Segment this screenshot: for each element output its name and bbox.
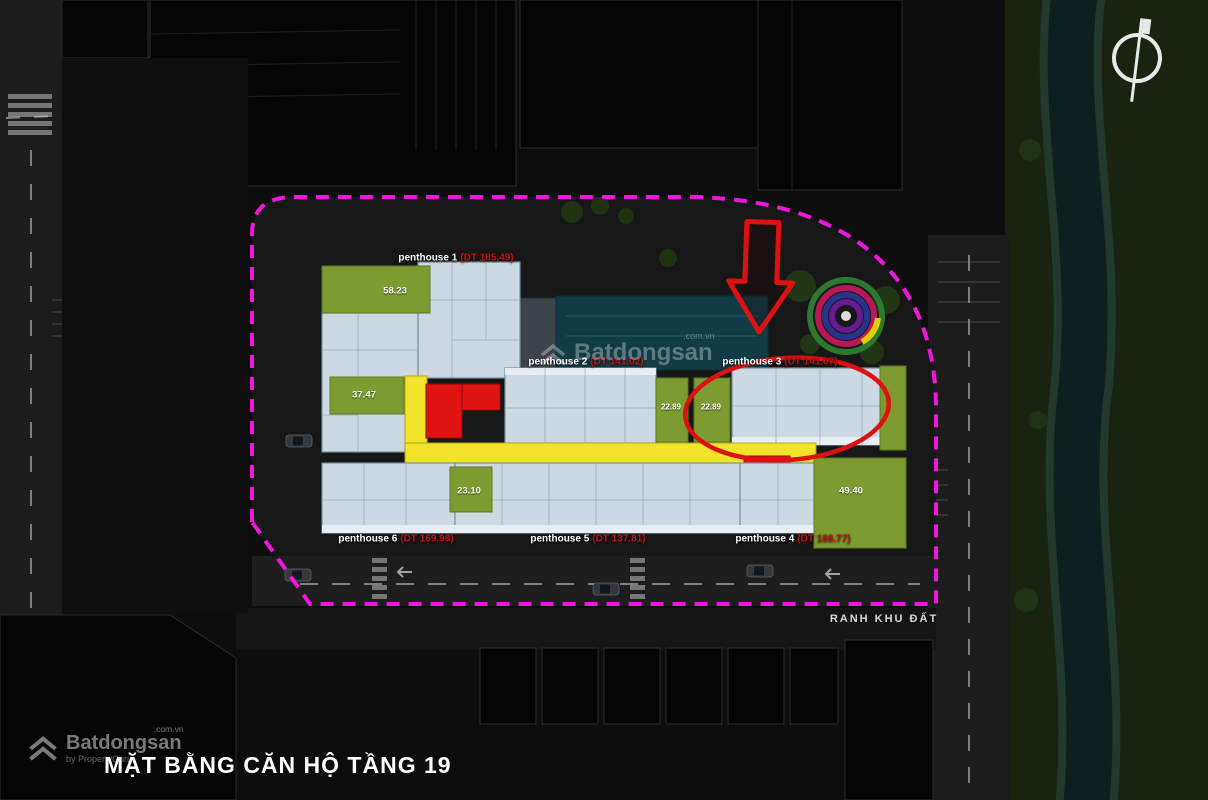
- garden-area-value: 58.23: [383, 286, 407, 297]
- watermark-brand: Batdongsan: [574, 341, 713, 365]
- building-block: [758, 0, 902, 190]
- garden-east-strip: [880, 366, 906, 450]
- park-and-river: [1005, 0, 1208, 800]
- penthouse-4-name: penthouse 4: [735, 534, 794, 545]
- penthouse-5-area: (DT 137.81): [592, 534, 645, 545]
- penthouse-1-area: (DT 185.49): [460, 253, 513, 264]
- penthouse-6-area: (DT 169.98): [400, 534, 453, 545]
- watermark: Batdongsan .com.vn: [538, 341, 713, 371]
- logo-house-icon: [26, 733, 60, 767]
- label-penthouse-1: penthouse 1(DT 185.49): [398, 253, 513, 264]
- garden-area-value: 22.89: [661, 403, 681, 412]
- garden-area-value: 49.40: [839, 486, 863, 497]
- rainbow-playground: [810, 280, 882, 352]
- penthouse-4-area: (DT 188.77): [797, 534, 850, 545]
- logo-brand: Batdongsan: [66, 733, 182, 753]
- penthouse-6-name: penthouse 6: [338, 534, 397, 545]
- river: [1071, 0, 1090, 800]
- unit-penthouse-6: [322, 463, 455, 533]
- penthouse-5-name: penthouse 5: [530, 534, 589, 545]
- site-plan-scene: penthouse 1(DT 185.49) penthouse 2(DT 14…: [0, 0, 1208, 800]
- core-red-2: [462, 384, 500, 410]
- unit-penthouse-1: [418, 262, 520, 378]
- tree-icon: [1019, 139, 1041, 161]
- garden-area-value: 37.47: [352, 390, 376, 401]
- penthouse-3-name: penthouse 3: [722, 357, 781, 368]
- garden-58: [322, 266, 430, 313]
- page-title: MẶT BẰNG CĂN HỘ TẦNG 19: [104, 752, 452, 779]
- logo-domain: .com.vn: [154, 724, 184, 734]
- label-penthouse-6: penthouse 6(DT 169.98): [338, 534, 453, 545]
- car-icon: [593, 583, 619, 595]
- core-red-1: [426, 384, 462, 438]
- site-plan-graphics: [0, 0, 1208, 800]
- building-block: [845, 640, 933, 800]
- car-icon: [286, 435, 312, 447]
- tree-icon: [1014, 588, 1038, 612]
- label-penthouse-5: penthouse 5(DT 137.81): [530, 534, 645, 545]
- watermark-house-icon: [538, 341, 568, 371]
- balconies: [322, 525, 816, 533]
- unit-penthouse-2: [505, 368, 656, 443]
- watermark-domain: .com.vn: [683, 331, 715, 341]
- west-lot: [62, 58, 248, 613]
- penthouse-3-area: (DT 141.07): [784, 357, 837, 368]
- boundary-label: RANH KHU ĐẤT: [830, 613, 938, 625]
- unit-penthouse-5: [455, 463, 740, 533]
- building-block: [520, 0, 758, 148]
- garden-area-value: 23.10: [457, 486, 481, 497]
- internal-road: [252, 556, 936, 606]
- car-icon: [285, 569, 311, 581]
- label-penthouse-3: penthouse 3(DT 141.07): [722, 357, 837, 368]
- garden-area-value: 22.89: [701, 403, 721, 412]
- tree-icon: [1029, 411, 1047, 429]
- penthouse-1-name: penthouse 1: [398, 253, 457, 264]
- car-icon: [747, 565, 773, 577]
- label-penthouse-4: penthouse 4(DT 188.77): [735, 534, 850, 545]
